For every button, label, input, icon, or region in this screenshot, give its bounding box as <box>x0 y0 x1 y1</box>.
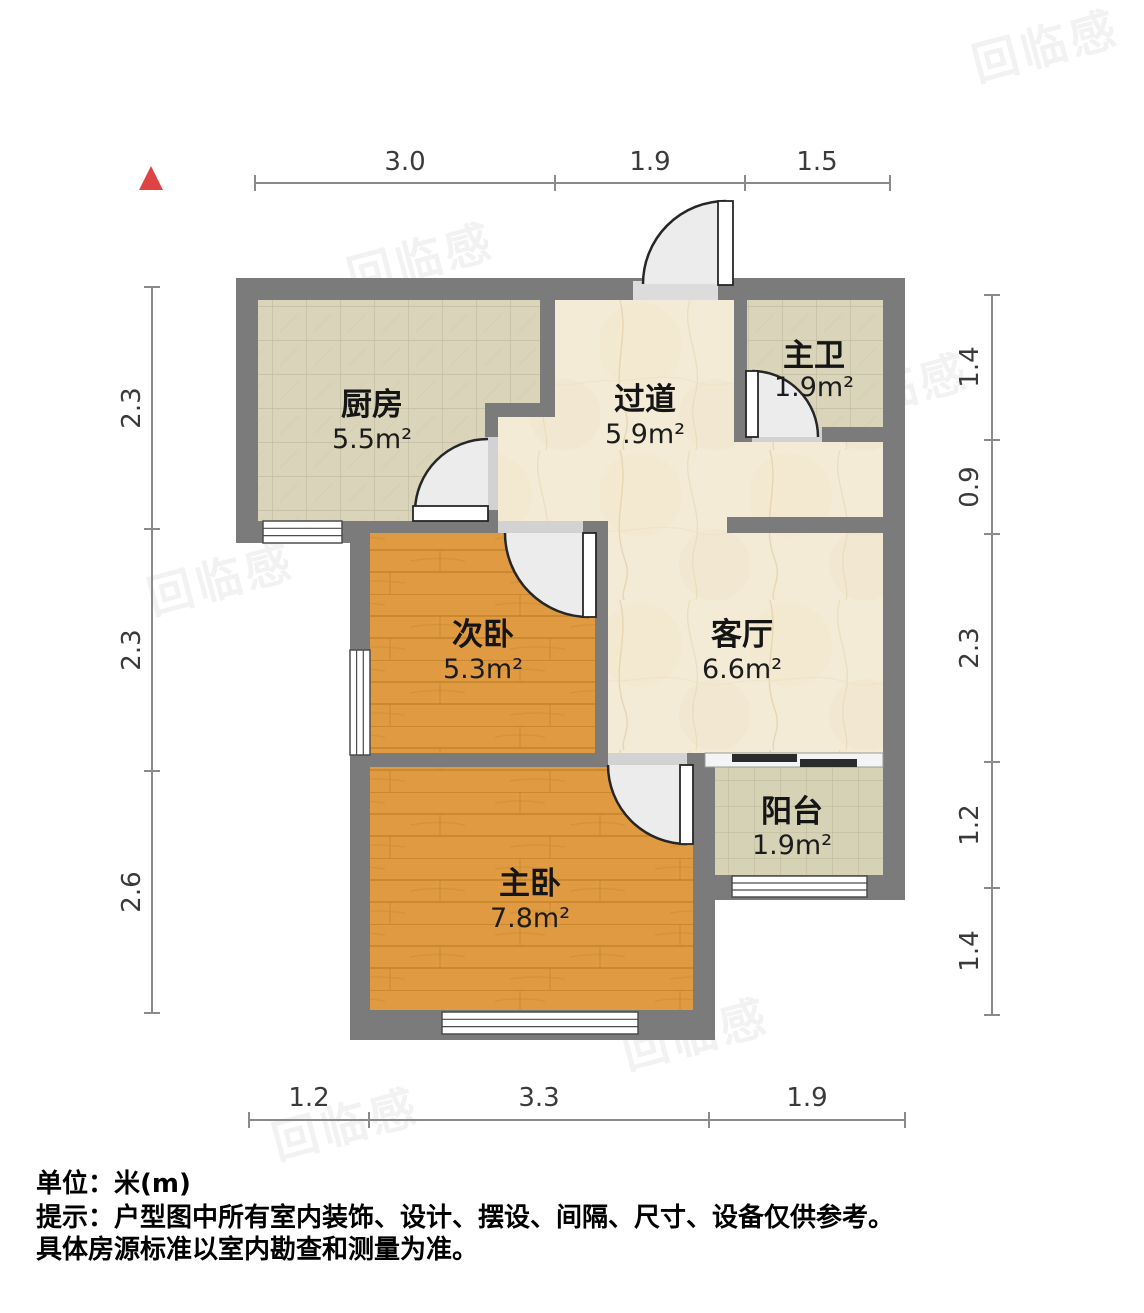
dim-left-3: 2.6 <box>117 871 147 912</box>
dim-bottom-3: 1.9 <box>786 1083 827 1113</box>
balcony-window <box>732 876 867 897</box>
wall-right <box>883 278 905 900</box>
entrance-door-leaf <box>718 201 733 285</box>
wall-left-upper <box>236 278 258 543</box>
floorplan-canvas: 回临感 回临感 回临感 回临感 回临感 回临感 <box>0 0 1144 1313</box>
dim-bottom-2: 3.3 <box>518 1083 559 1113</box>
dim-right-3: 2.3 <box>955 627 985 668</box>
footer-notice-line1: 提示：户型图中所有室内装饰、设计、摆设、间隔、尺寸、设备仅供参考。 <box>36 1202 894 1233</box>
wall-bedrooms-left <box>350 521 370 1040</box>
master-door-leaf <box>680 765 693 844</box>
dim-right-5: 1.4 <box>955 930 985 971</box>
balcony-sliding-door <box>705 753 883 767</box>
room-label-kitchen: 厨房 <box>341 387 403 423</box>
footer-notice-line2: 具体房源标准以室内勘查和测量为准。 <box>36 1234 478 1265</box>
footer-unit-line: 单位：米(m) <box>36 1168 191 1199</box>
wall-top <box>236 278 905 300</box>
room-area-bedroom2: 5.3m² <box>443 654 523 685</box>
floorplan-page: 回临感 回临感 回临感 回临感 回临感 回临感 <box>0 0 1144 1313</box>
wall-hall-bathroom <box>734 300 747 433</box>
room-area-kitchen: 5.5m² <box>332 424 412 455</box>
bedroom2-window <box>350 650 370 755</box>
entrance-door <box>643 201 733 285</box>
dim-left-2: 2.3 <box>117 629 147 670</box>
room-label-bathroom: 主卫 <box>783 338 845 374</box>
bathroom-door-leaf <box>746 371 758 437</box>
dim-bottom-1: 1.2 <box>288 1083 329 1113</box>
kitchen-window <box>263 521 342 543</box>
dim-right-1: 1.4 <box>955 346 985 387</box>
bedroom2-door-opening <box>498 521 583 533</box>
master-door-opening <box>608 753 687 767</box>
dim-right-2: 0.9 <box>955 466 985 507</box>
room-label-master: 主卧 <box>499 866 561 902</box>
room-area-hallway: 5.9m² <box>605 419 685 450</box>
room-label-balcony: 阳台 <box>761 794 823 830</box>
bedroom2-door-leaf <box>583 533 596 617</box>
room-label-hallway: 过道 <box>614 382 676 418</box>
wall-living-left <box>595 521 608 767</box>
dim-top-3: 1.5 <box>796 147 837 177</box>
room-label-bedroom2: 次卧 <box>452 617 514 653</box>
dim-top-2: 1.9 <box>629 147 670 177</box>
dim-left-1: 2.3 <box>117 387 147 428</box>
slider-panel-right <box>800 759 857 767</box>
dimension-left: 2.3 2.3 2.6 <box>117 287 160 1013</box>
dimension-top: 3.0 1.9 1.5 <box>255 147 890 191</box>
room-area-living: 6.6m² <box>702 654 782 685</box>
wall-nook-bottom <box>727 517 883 533</box>
footer-notes: 单位：米(m) 提示：户型图中所有室内装饰、设计、摆设、间隔、尺寸、设备仅供参考… <box>36 1168 894 1265</box>
dim-right-4: 1.2 <box>955 804 985 845</box>
wall-kitchen-step <box>485 403 555 417</box>
wall-kitchen-hall-upper <box>540 300 555 405</box>
north-arrow-icon <box>139 166 163 190</box>
dim-top-1: 3.0 <box>384 147 425 177</box>
slider-panel-left <box>732 754 797 762</box>
dimension-right: 1.4 0.9 2.3 1.2 1.4 <box>955 295 1000 1015</box>
watermark-text: 回临感 <box>141 534 300 625</box>
wall-bedroom-divider <box>350 753 608 767</box>
room-area-bathroom: 1.9m² <box>774 372 854 403</box>
kitchen-door-leaf <box>413 506 488 521</box>
room-label-living: 客厅 <box>711 617 773 653</box>
master-bedroom-window <box>442 1012 638 1034</box>
room-area-balcony: 1.9m² <box>752 830 832 861</box>
watermark-text: 回临感 <box>966 1 1125 92</box>
room-area-master: 7.8m² <box>490 903 570 934</box>
